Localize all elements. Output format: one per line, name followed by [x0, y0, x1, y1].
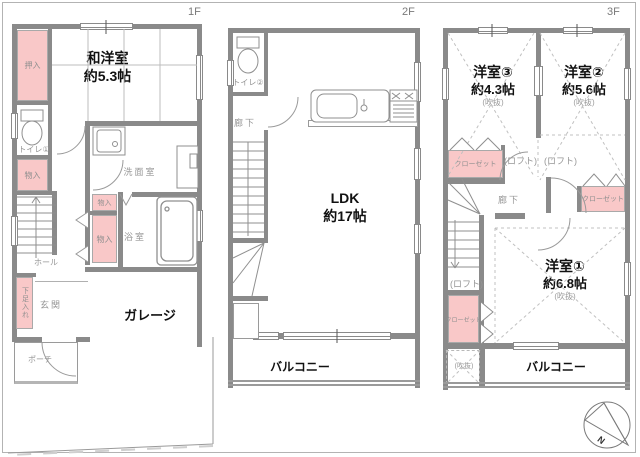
window-ticks-3f [492, 24, 577, 37]
compass-north-label: N [596, 434, 607, 446]
tatami-grid [52, 29, 197, 121]
stairs-2f [233, 142, 264, 296]
void-cross-lines [446, 33, 625, 384]
folding-doors-3f [450, 138, 625, 344]
stairs-1f [17, 197, 56, 258]
toilet-icon-1f [21, 110, 43, 145]
toilet-icon-2f [237, 37, 259, 73]
floor-plan-canvas: 1F 押入 物入 物入 物入 下足入れ [0, 0, 640, 457]
vector-overlay: N [0, 0, 640, 457]
door-arc-2f [268, 97, 298, 127]
stove-icon [390, 90, 417, 122]
washbasin-icon [93, 127, 125, 155]
compass-icon: N [584, 402, 630, 448]
laundry-icon [177, 146, 198, 188]
door-arcs-3f [500, 152, 586, 250]
site-boundary-line [8, 337, 213, 455]
kitchen-sink-icon [311, 90, 389, 122]
bathtub-icon [157, 197, 197, 265]
stairs-3f [448, 179, 480, 268]
door-arcs-1f [42, 126, 132, 376]
